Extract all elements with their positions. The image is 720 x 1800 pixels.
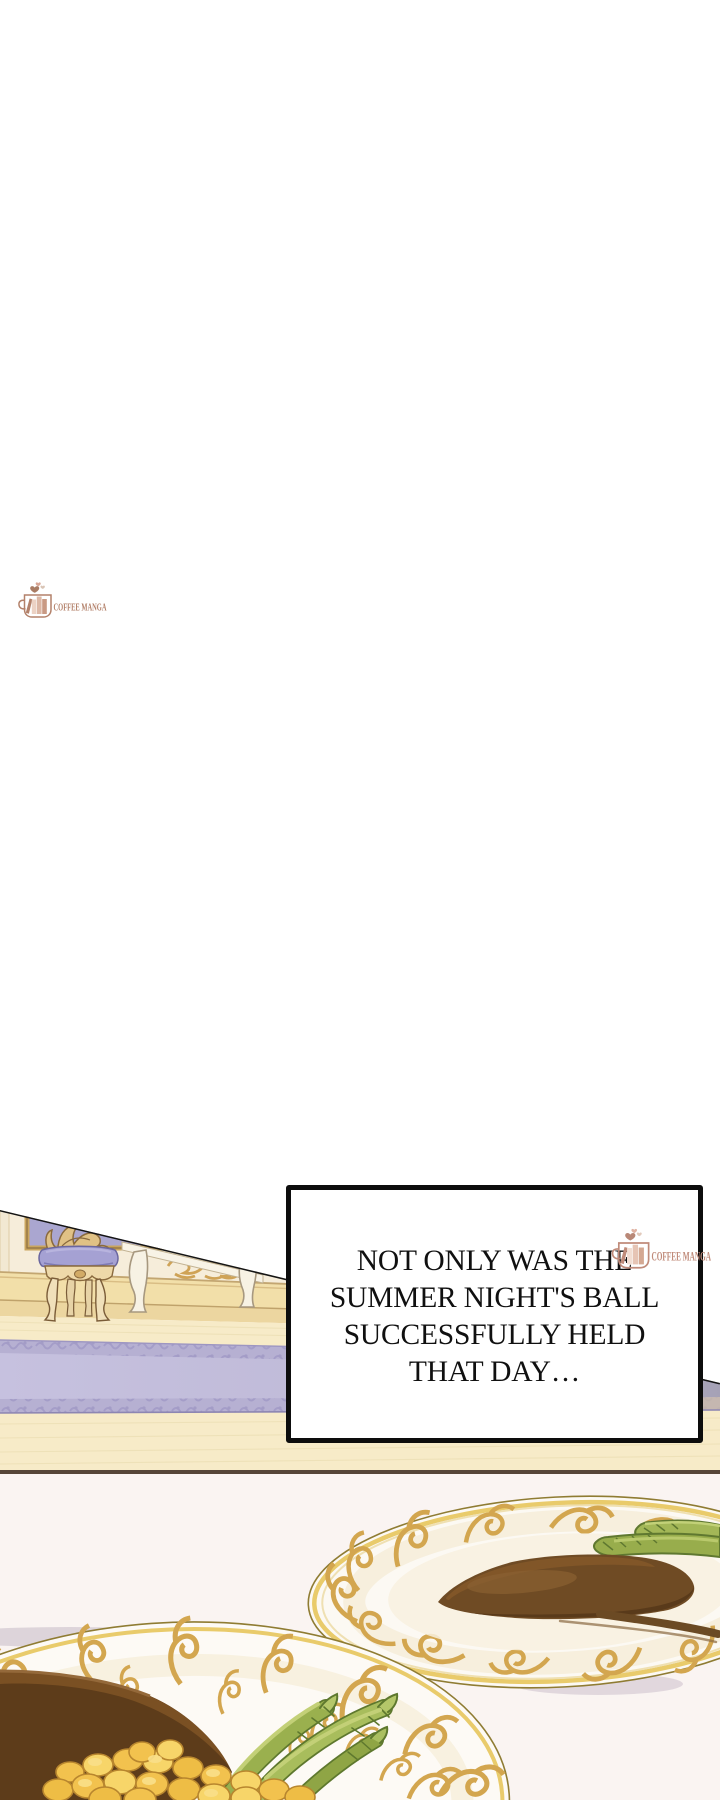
svg-text:COFFEE MANGA: COFFEE MANGA [54, 602, 107, 614]
svg-text:COFFEE MANGA: COFFEE MANGA [651, 1249, 711, 1263]
